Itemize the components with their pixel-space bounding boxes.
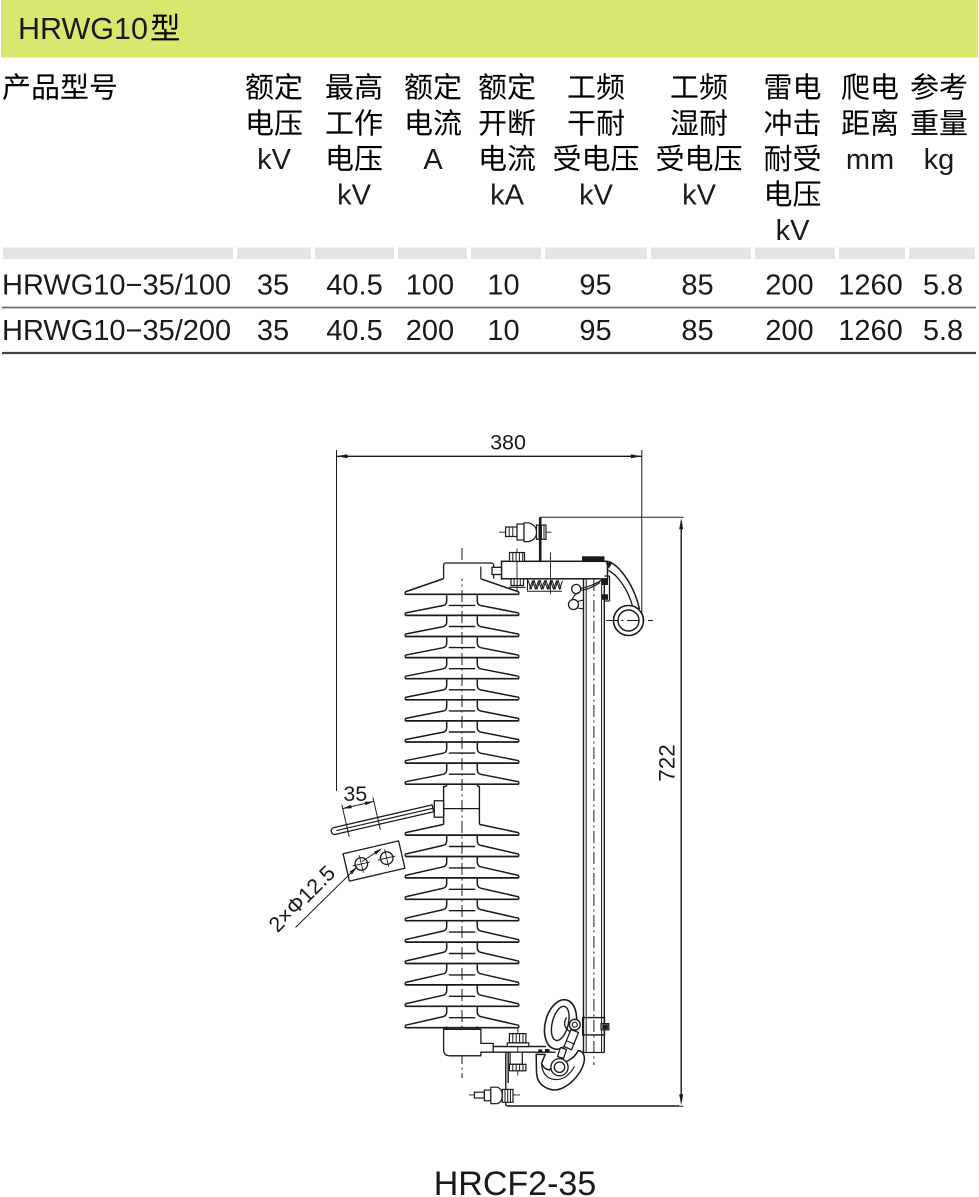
svg-text:HRCF2-35: HRCF2-35 (434, 1165, 596, 1197)
svg-text:5.8: 5.8 (923, 270, 963, 302)
svg-text:kV: kV (579, 180, 614, 212)
svg-text:722: 722 (655, 744, 680, 782)
svg-text:kg: kg (924, 144, 955, 176)
svg-text:40.5: 40.5 (326, 315, 382, 347)
svg-text:200: 200 (765, 270, 813, 302)
svg-text:35: 35 (257, 270, 289, 302)
svg-text:85: 85 (681, 315, 713, 347)
svg-text:A: A (423, 144, 443, 176)
svg-text:kV: kV (257, 144, 292, 176)
svg-text:HRWG10−35/100: HRWG10−35/100 (2, 270, 231, 302)
svg-text:200: 200 (406, 315, 454, 347)
svg-text:HRWG10−35/200: HRWG10−35/200 (2, 315, 231, 347)
svg-text:kA: kA (490, 180, 525, 212)
svg-text:kV: kV (337, 180, 372, 212)
svg-text:35: 35 (257, 315, 289, 347)
svg-text:5.8: 5.8 (923, 315, 963, 347)
svg-text:kV: kV (682, 180, 717, 212)
svg-text:10: 10 (487, 270, 519, 302)
svg-text:95: 95 (579, 270, 611, 302)
svg-text:85: 85 (681, 270, 713, 302)
svg-text:95: 95 (579, 315, 611, 347)
svg-text:100: 100 (406, 270, 454, 302)
svg-text:1260: 1260 (838, 315, 903, 347)
svg-text:10: 10 (487, 315, 519, 347)
svg-text:35: 35 (343, 782, 367, 806)
svg-text:200: 200 (765, 315, 813, 347)
svg-text:kV: kV (776, 215, 811, 247)
svg-text:40.5: 40.5 (326, 270, 382, 302)
svg-text:380: 380 (490, 431, 526, 455)
svg-text:1260: 1260 (838, 270, 903, 302)
svg-text:mm: mm (846, 144, 894, 176)
svg-text:HRWG10: HRWG10 (18, 12, 148, 46)
